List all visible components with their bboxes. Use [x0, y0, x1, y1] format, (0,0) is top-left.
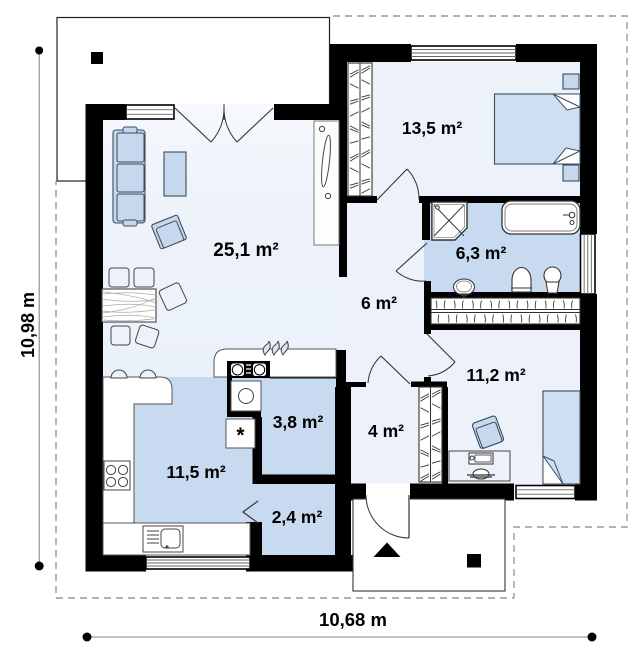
svg-text:3,8 m²: 3,8 m²: [273, 412, 324, 432]
svg-text:6,3 m²: 6,3 m²: [456, 243, 507, 263]
svg-text:*: *: [236, 424, 245, 447]
svg-text:2,4 m²: 2,4 m²: [272, 507, 323, 527]
svg-text:13,5 m²: 13,5 m²: [402, 118, 462, 138]
svg-text:4 m²: 4 m²: [368, 421, 404, 441]
svg-text:25,1 m²: 25,1 m²: [213, 240, 278, 261]
svg-text:10,68 m: 10,68 m: [319, 609, 387, 630]
svg-text:10,98 m: 10,98 m: [18, 292, 38, 358]
svg-text:6 m²: 6 m²: [361, 293, 397, 313]
svg-text:11,5 m²: 11,5 m²: [166, 462, 226, 482]
svg-text:11,2 m²: 11,2 m²: [466, 365, 526, 385]
